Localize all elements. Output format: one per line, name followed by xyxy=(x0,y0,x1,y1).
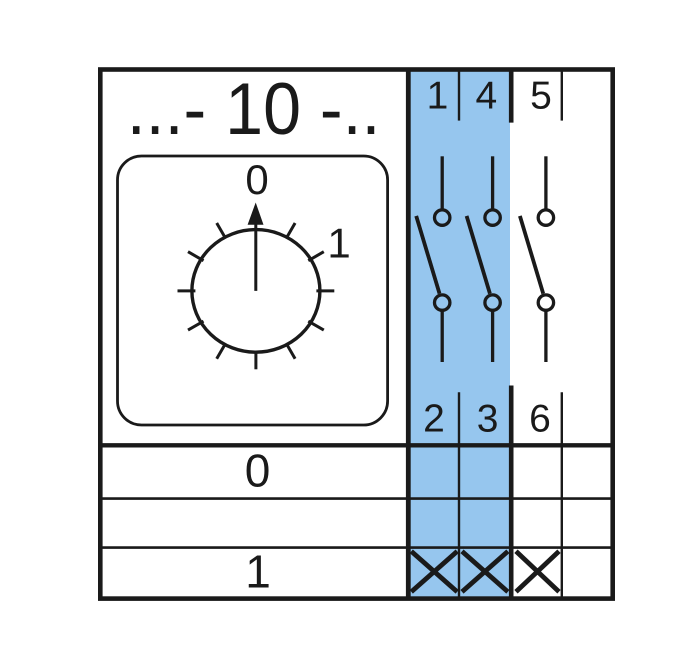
svg-text:4: 4 xyxy=(476,74,498,117)
svg-text:1: 1 xyxy=(245,545,271,597)
svg-text:0: 0 xyxy=(245,156,268,203)
svg-text:...- 10 -..: ...- 10 -.. xyxy=(127,68,381,150)
svg-text:0: 0 xyxy=(245,444,271,496)
svg-text:6: 6 xyxy=(529,397,551,440)
svg-text:1: 1 xyxy=(327,220,350,267)
svg-text:3: 3 xyxy=(477,397,499,440)
svg-text:1: 1 xyxy=(427,74,449,117)
svg-text:2: 2 xyxy=(423,397,445,440)
svg-text:5: 5 xyxy=(530,74,552,117)
